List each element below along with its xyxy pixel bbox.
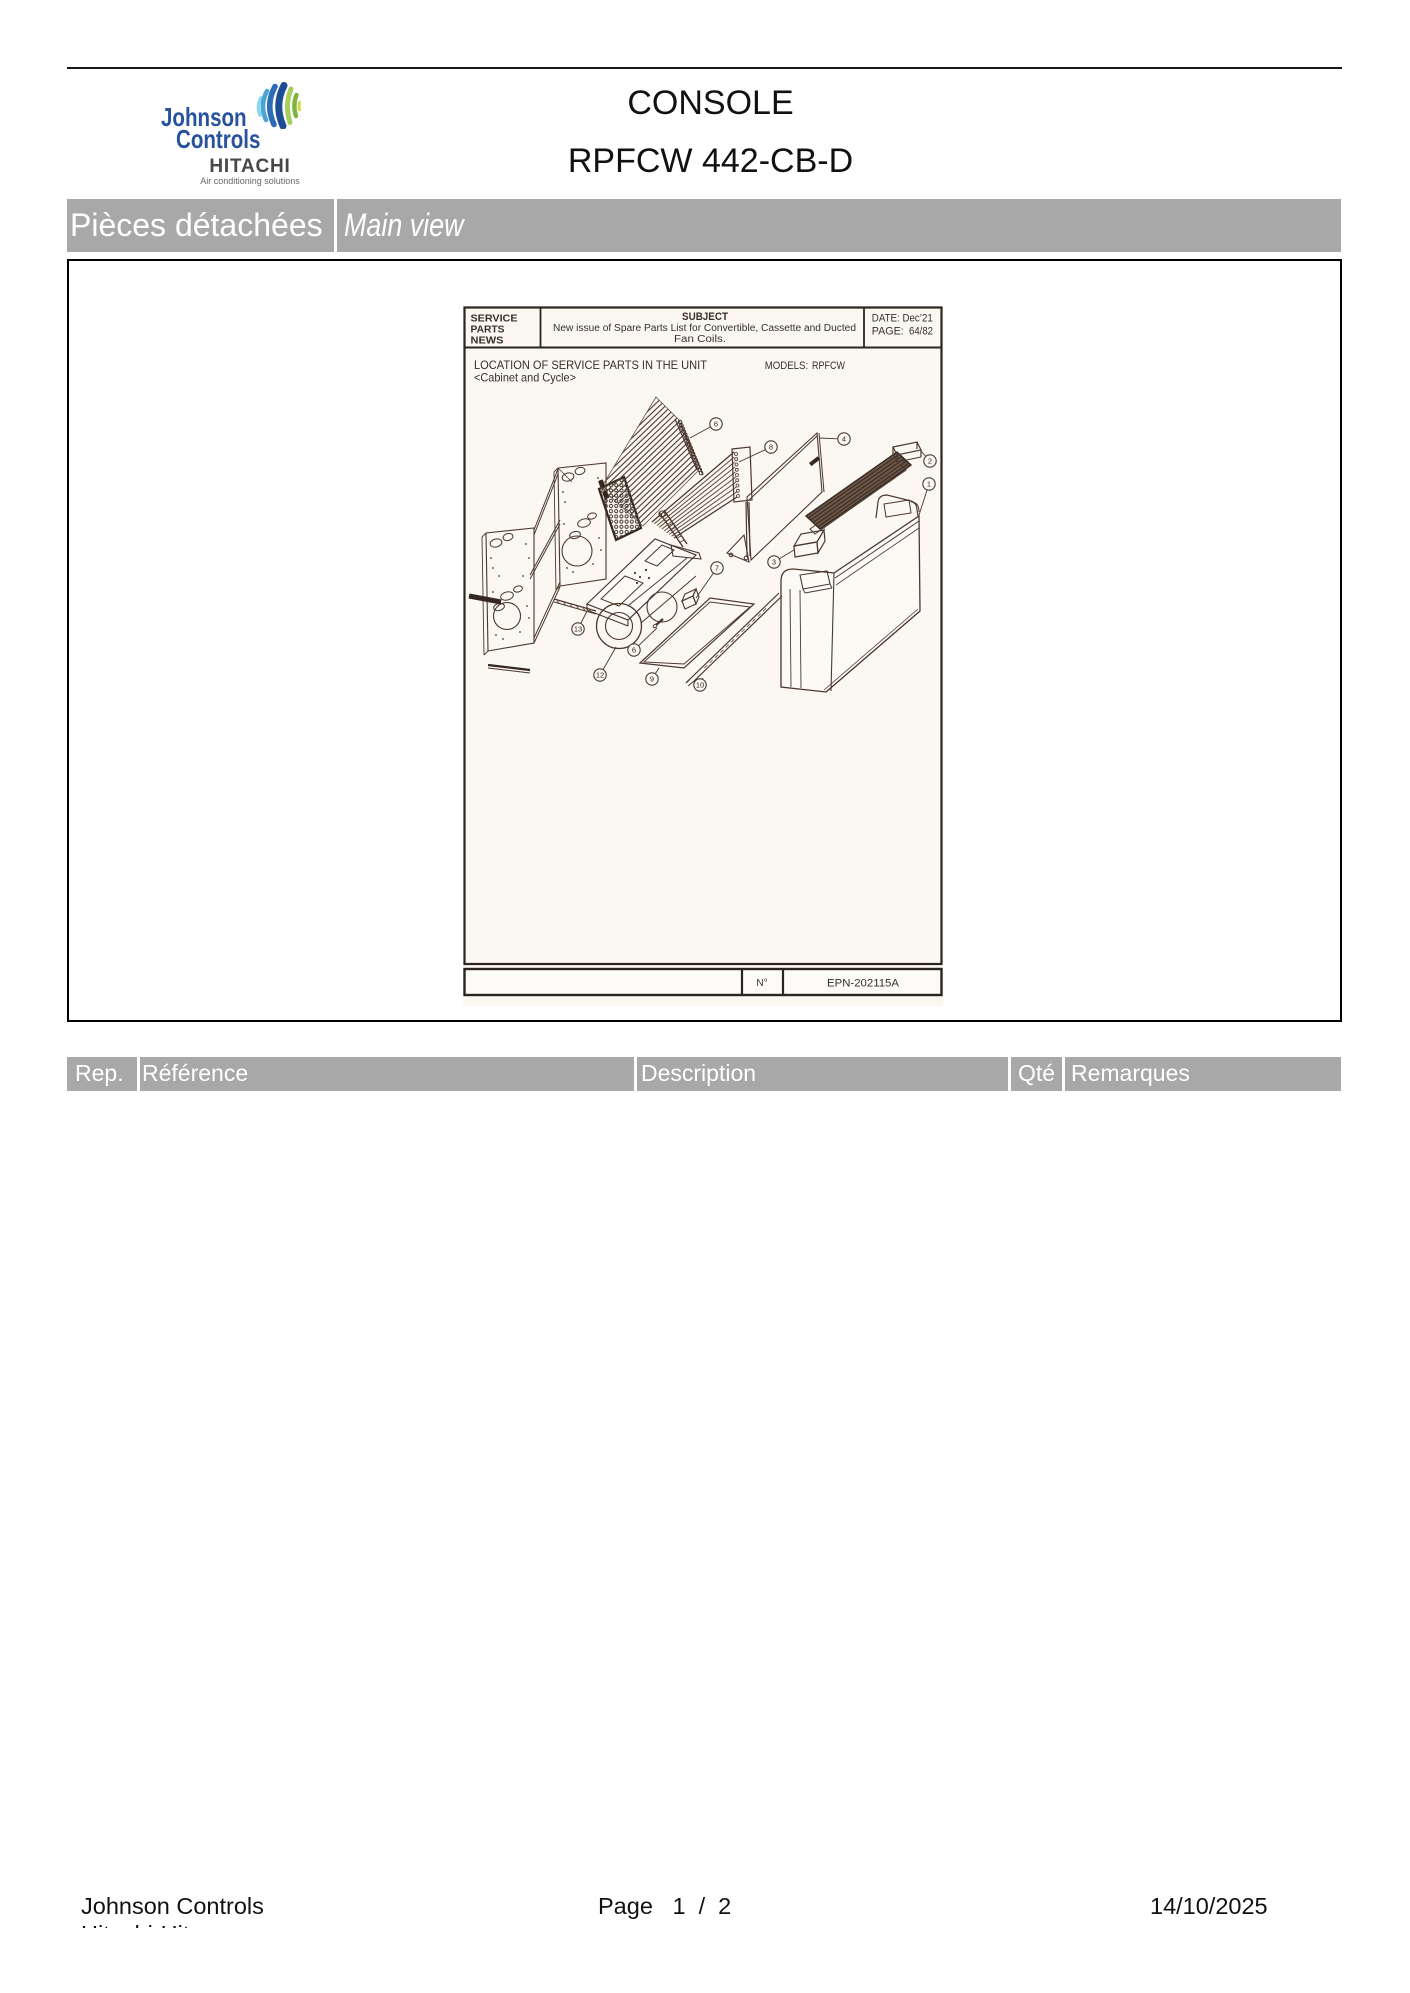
svg-text:DATE: Dec’21: DATE: Dec’21 [872, 313, 933, 325]
svg-text:NEWS: NEWS [471, 335, 504, 347]
svg-text:<Cabinet and Cycle>: <Cabinet and Cycle> [474, 371, 576, 385]
svg-text:EPN-202115A: EPN-202115A [827, 978, 900, 990]
svg-text:3: 3 [772, 558, 776, 567]
svg-text:New issue of Spare Parts List: New issue of Spare Parts List for Conver… [553, 323, 856, 334]
svg-text:10: 10 [696, 681, 704, 690]
svg-text:SUBJECT: SUBJECT [682, 311, 728, 323]
svg-text:8: 8 [769, 443, 773, 452]
svg-text:7: 7 [715, 564, 719, 573]
svg-text:9: 9 [650, 675, 654, 684]
svg-text:4: 4 [842, 435, 846, 444]
svg-text:2: 2 [928, 457, 932, 466]
svg-text:6: 6 [714, 420, 718, 429]
svg-text:12: 12 [596, 671, 604, 680]
svg-text:PAGE:: PAGE: [872, 326, 904, 338]
svg-text:Fan Coils.: Fan Coils. [674, 334, 726, 345]
svg-text:1: 1 [927, 480, 931, 489]
svg-text:RPFCW: RPFCW [812, 360, 846, 372]
svg-text:13: 13 [574, 625, 582, 634]
svg-text:64/82: 64/82 [909, 326, 933, 338]
svg-text:MODELS:: MODELS: [765, 360, 809, 372]
svg-text:N°: N° [756, 978, 767, 989]
svg-text:6: 6 [632, 646, 636, 655]
